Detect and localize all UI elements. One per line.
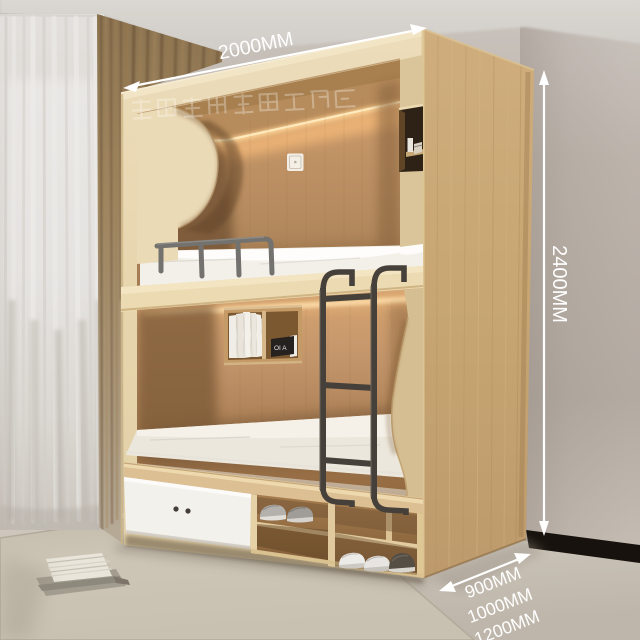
svg-text:OI A: OI A [274,345,287,352]
svg-text:2400MM: 2400MM [548,245,570,323]
